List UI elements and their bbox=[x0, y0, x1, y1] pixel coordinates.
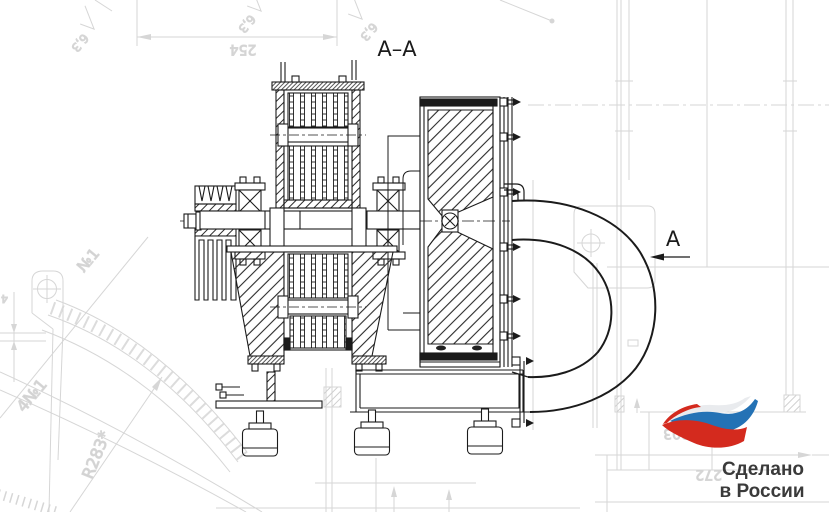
machine-section-view bbox=[180, 60, 655, 456]
rotor-upper-chamber bbox=[270, 60, 366, 208]
thickness-4-label: 4 bbox=[1, 292, 8, 305]
roughness-mark-2 bbox=[241, 0, 269, 15]
technical-drawing: 6,3 6,3 6,3 254 4 №1 4№1 R283* 303 272 bbox=[0, 0, 829, 512]
shaft-end-bolt bbox=[184, 214, 196, 228]
drawing-canvas: 6,3 6,3 6,3 254 4 №1 4№1 R283* 303 272 bbox=[0, 0, 829, 512]
belt-pulley bbox=[184, 186, 236, 300]
background-dimension-254 bbox=[95, 0, 337, 46]
vibration-foot-1 bbox=[243, 411, 278, 456]
roughness-label-2: 6,3 bbox=[235, 12, 258, 36]
roughness-mark-1 bbox=[74, 6, 102, 33]
dim-254-label: 254 bbox=[230, 41, 257, 57]
flange-bolts bbox=[500, 98, 521, 340]
vibration-foot-2 bbox=[355, 410, 390, 455]
logo-text-line2: в России bbox=[719, 481, 804, 502]
outlet-duct bbox=[504, 184, 655, 412]
rotor-side-plate-left bbox=[270, 208, 284, 252]
main-shaft bbox=[200, 211, 443, 229]
view-direction-arrow bbox=[650, 254, 664, 261]
left-support bbox=[216, 372, 322, 408]
view-direction: А bbox=[650, 227, 690, 261]
vibration-foot-3 bbox=[468, 409, 503, 454]
rotor-lower-chamber bbox=[227, 246, 397, 371]
position-label-no1: №1 bbox=[73, 245, 103, 276]
view-arrow-label: А bbox=[666, 227, 681, 251]
roughness-mark-3 bbox=[342, 0, 370, 23]
section-label: А–А bbox=[377, 37, 417, 61]
base-frame bbox=[350, 370, 532, 412]
roughness-label-1: 6,3 bbox=[68, 31, 91, 55]
logo-text-line1: Сделано bbox=[722, 459, 804, 480]
background-right-view bbox=[500, 0, 829, 470]
fan-housing bbox=[420, 97, 512, 367]
position-label-4no1: 4№1 bbox=[13, 375, 51, 416]
dim-272-label: 272 bbox=[695, 466, 722, 482]
rotor-side-plate-right bbox=[352, 208, 366, 252]
